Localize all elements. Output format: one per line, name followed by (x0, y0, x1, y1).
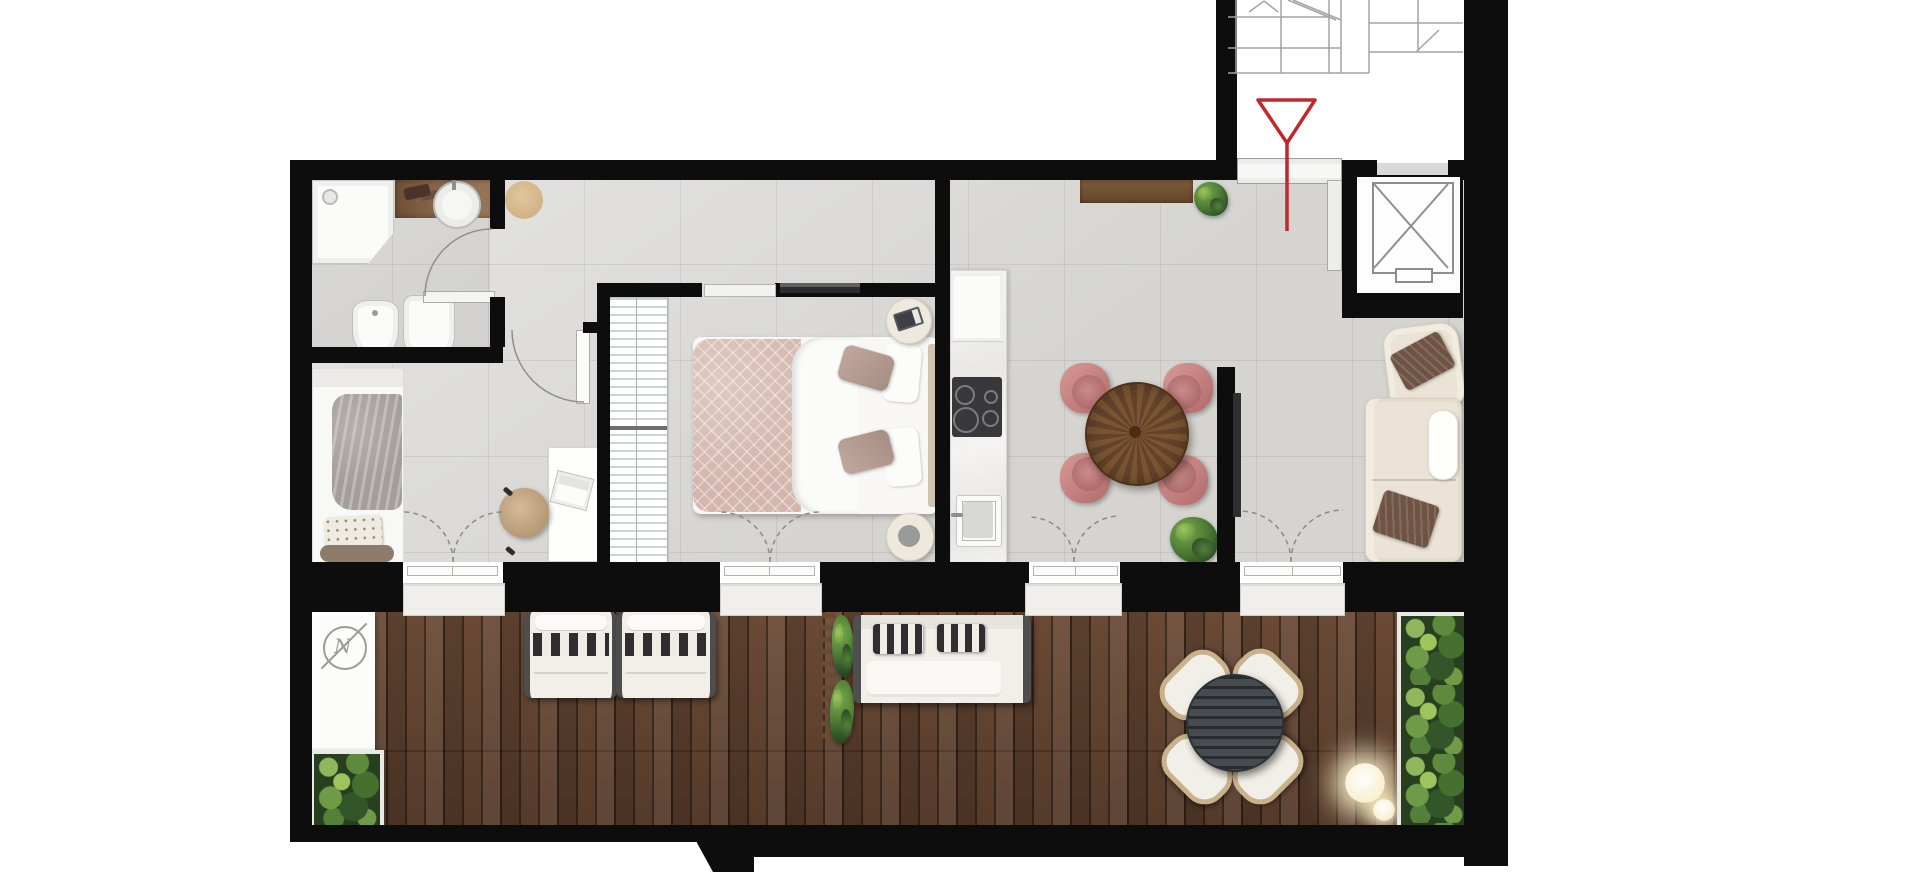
lounger-stripe-towel (533, 633, 609, 656)
french-door-leaf (1075, 566, 1118, 576)
outdoor-table (1186, 674, 1284, 772)
french-door-leaf (724, 566, 770, 576)
bedroom-door-leaf (576, 330, 590, 404)
sun-lounger (616, 612, 716, 698)
french-door-threshold (720, 583, 822, 616)
sofa-bolster (1428, 410, 1458, 480)
wall-bottom-left (290, 825, 697, 842)
wall-bathroom-right-bottom (490, 297, 505, 347)
compass-letter: N (334, 634, 352, 658)
duvet-blush (693, 339, 801, 512)
round-rug (505, 181, 543, 219)
entry-plant (1194, 182, 1228, 216)
wall-bedroom2-left (597, 283, 610, 562)
living-tv (1233, 393, 1241, 517)
outdoor-pillow (873, 624, 923, 654)
wall-terrace-c (820, 562, 1029, 612)
lounger-seam (534, 672, 608, 674)
planter-box (310, 750, 384, 831)
floor-plan: N (0, 0, 1920, 872)
burner-icon (953, 407, 979, 433)
entry-bench (1080, 180, 1193, 203)
wall-right (1464, 0, 1508, 866)
french-door-threshold (403, 583, 505, 616)
wall-kitchen (935, 180, 950, 562)
shower-drain-icon (322, 189, 338, 205)
outdoor-sofa (853, 615, 1031, 703)
wall-tower-left (1216, 0, 1237, 180)
sink-faucet-icon (951, 513, 963, 517)
north-panel: N (312, 612, 375, 750)
french-door-threshold (1025, 583, 1122, 616)
wall-bottom-right (753, 825, 1464, 857)
french-door-leaf (452, 566, 498, 576)
lounger-stripe-towel (625, 633, 707, 656)
outdoor-pillow (937, 624, 985, 652)
wardrobe (608, 297, 669, 564)
wall-terrace-d (1120, 562, 1240, 612)
lounger-seam (626, 672, 706, 674)
kitchen-cabinet (951, 273, 1003, 342)
elevator-door-tab (1395, 268, 1433, 283)
entrance-door-leaf (1327, 180, 1342, 271)
wall-terrace-a (312, 562, 403, 612)
planter-box (1397, 612, 1470, 829)
stairwell (1228, 0, 1464, 160)
globe-light (1373, 799, 1395, 821)
wall-bathroom-right-top (490, 180, 505, 229)
sink-basin (963, 502, 993, 538)
sliding-door-leaf (704, 284, 776, 297)
globe-light (1345, 763, 1385, 803)
french-door-threshold (1240, 583, 1345, 616)
wall-bedroom2-top-left (597, 283, 702, 297)
vanity-basin (433, 181, 481, 229)
french-door-leaf (769, 566, 815, 576)
wardrobe-divider (608, 426, 667, 430)
sun-lounger (524, 612, 618, 698)
bed-bolster (320, 545, 394, 562)
french-door-leaf (407, 566, 453, 576)
nightstand-tray-icon (898, 525, 920, 547)
elevator-threshold (1377, 163, 1448, 175)
wall-top (290, 160, 1216, 180)
bathroom-door-leaf (423, 291, 495, 303)
french-door-leaf (1292, 566, 1341, 576)
wall-terrace-b (503, 562, 720, 612)
desk-chair (499, 488, 549, 538)
dining-plant (1170, 517, 1218, 563)
bidet-tap-icon (372, 310, 378, 316)
french-door-leaf (1033, 566, 1076, 576)
wall-bottom-step (697, 825, 754, 872)
bed-blanket (332, 394, 402, 510)
bedroom-tv (780, 283, 860, 293)
table-center-icon (1129, 426, 1141, 438)
burner-icon (955, 385, 975, 405)
outdoor-seat-cushion (867, 661, 1001, 697)
lounger-pillow (627, 615, 705, 630)
wall-terrace-e (1343, 562, 1464, 612)
french-door-leaf (1244, 566, 1293, 576)
lounger-pillow (535, 615, 607, 630)
elevator-cab (1372, 182, 1454, 274)
burner-icon (982, 410, 999, 427)
burner-icon (984, 390, 998, 404)
wall-left (290, 160, 312, 842)
wall-bathroom-bottom (290, 347, 503, 363)
